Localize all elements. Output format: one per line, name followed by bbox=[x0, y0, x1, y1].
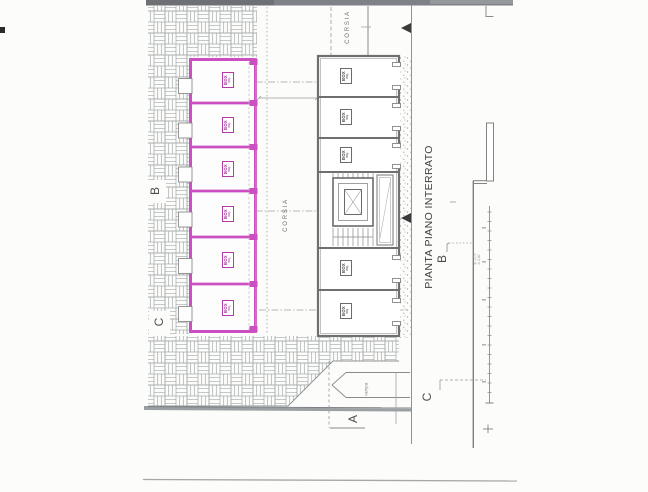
unit-label: BOXmq. bbox=[222, 252, 234, 268]
section-marker-b-right: B bbox=[435, 255, 449, 263]
right-garage-boxes bbox=[318, 56, 401, 336]
unit-label: BOXmq. bbox=[340, 147, 352, 163]
stair-flight bbox=[377, 175, 393, 245]
level-staff bbox=[482, 206, 494, 403]
unit-label: BOXmq. bbox=[222, 161, 234, 177]
section-marker-a-bottom: A bbox=[346, 415, 360, 423]
unit-label: BOXmq. bbox=[340, 68, 352, 84]
highlighted-garage-boxes bbox=[179, 58, 258, 333]
unit-label: BOXmq. bbox=[222, 72, 234, 88]
unit-label: BOXmq. bbox=[222, 117, 234, 133]
scanned-floor-plan: PIANTA PIANO INTERRATO CORSIA CORSIA ram… bbox=[0, 0, 648, 492]
unit-label: BOXmq. bbox=[340, 303, 352, 319]
section-marker-c-right: C bbox=[420, 393, 434, 402]
corsia-label-center: CORSIA bbox=[283, 198, 289, 232]
section-marker-c-left: C bbox=[152, 318, 166, 327]
direction-arrow-icon bbox=[401, 23, 411, 33]
section-cut-line bbox=[400, 5, 412, 444]
unit-label: BOXmq. bbox=[340, 260, 352, 276]
crop-marks bbox=[483, 6, 494, 433]
ground-lines bbox=[143, 407, 517, 481]
corsia-label-top: CORSIA bbox=[345, 10, 351, 44]
section-profile bbox=[440, 6, 494, 448]
unit-label: BOXmq. bbox=[222, 300, 234, 316]
unit-label: BOXmq. bbox=[222, 206, 234, 222]
ramp-label: rampa bbox=[364, 383, 369, 396]
unit-label: BOXmq. bbox=[340, 109, 352, 125]
elevator-shaft bbox=[333, 178, 373, 226]
section-marker-b-left: B bbox=[148, 187, 162, 195]
page-title: PIANTA PIANO INTERRATO bbox=[423, 145, 435, 289]
plan-linework bbox=[0, 0, 648, 492]
section-note: q. -2,75 h. 2,40 bbox=[474, 254, 482, 265]
ramp bbox=[329, 361, 410, 428]
